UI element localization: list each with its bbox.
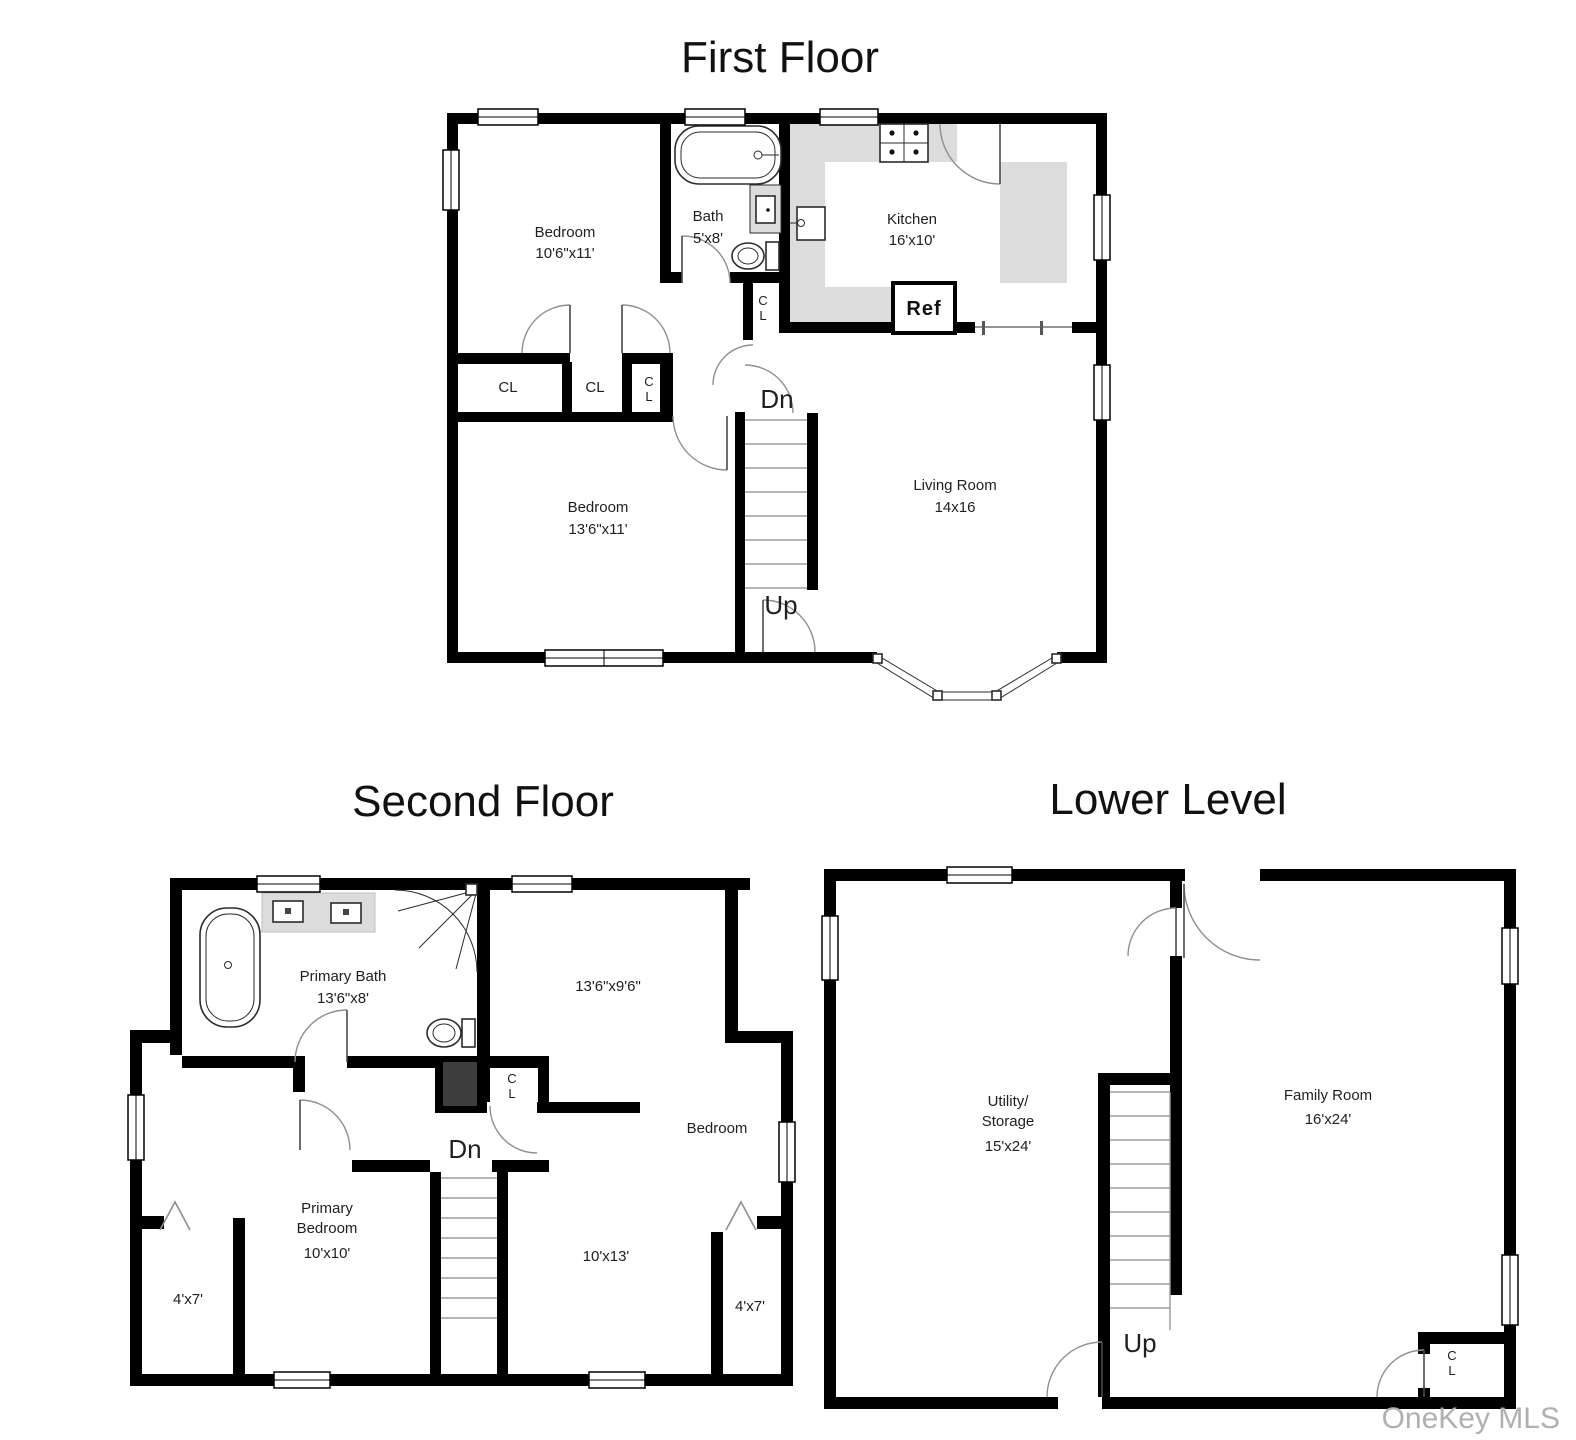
shower-icon (395, 884, 477, 972)
room-dims-bath: 5'x8' (693, 230, 723, 247)
toilet-icon (732, 242, 779, 270)
door-tick (982, 321, 985, 335)
closet-label: L (1448, 1363, 1455, 1378)
onekey-mls-watermark: OneKey MLS (1382, 1402, 1560, 1435)
refrigerator-icon: Ref (893, 283, 955, 333)
stove-icon (880, 124, 928, 162)
room-label-bedroom1: Bedroom (535, 224, 596, 241)
closet-label-cl1: CL (498, 379, 517, 396)
room-label-kitchen: Kitchen (887, 211, 937, 228)
bay-window (873, 654, 1061, 700)
room-dims-bedroom: 10'x13' (583, 1248, 630, 1265)
room-label-primary-bedroom-2: Bedroom (297, 1220, 358, 1237)
second-floor-doors (295, 1010, 537, 1153)
room-dims-kitchen: 16'x10' (889, 232, 936, 249)
closet-label: C (758, 293, 767, 308)
first-floor-stairs (745, 420, 807, 588)
primary-bath-vanity (262, 893, 375, 932)
bathtub-icon (675, 126, 781, 184)
lower-level-plan: Lower Level (822, 775, 1518, 1409)
closet-dims-right: 4'x7' (735, 1298, 765, 1315)
room-label-primary-bedroom-1: Primary (301, 1200, 353, 1217)
closet-label-cl3: C (644, 374, 653, 389)
closet-label: C (1447, 1348, 1456, 1363)
closet-label: L (508, 1086, 515, 1101)
attic-access-marker (160, 1202, 190, 1230)
room-dims-family: 16'x24' (1305, 1111, 1352, 1128)
closet-label: C (507, 1071, 516, 1086)
first-floor-plan: First Floor (443, 33, 1110, 700)
dark-closet (443, 1062, 477, 1106)
stairs-up-label: Up (764, 590, 797, 620)
lower-level-stairs (1110, 1092, 1170, 1330)
primary-bathtub-icon (200, 908, 260, 1027)
attic-access-marker (726, 1202, 756, 1230)
room-label-living: Living Room (913, 477, 996, 494)
second-floor-plan: Second Floor (128, 777, 795, 1388)
second-floor-title: Second Floor (352, 777, 614, 826)
floorplan-page: First Floor (0, 0, 1576, 1440)
room-dims-bedroom2: 13'6"x11' (568, 521, 627, 538)
room-dims-primary-bath: 13'6"x8' (317, 990, 369, 1007)
closet-dims-left: 4'x7' (173, 1291, 203, 1308)
room-label-bedroom: Bedroom (687, 1120, 748, 1137)
stairs-dn-label: Dn (448, 1134, 481, 1164)
closet-label-cl3: L (645, 389, 652, 404)
closet-label: L (759, 308, 766, 323)
room-dims-utility: 15'x24' (985, 1138, 1032, 1155)
toilet-icon (427, 1019, 475, 1047)
stairs-dn-label: Dn (760, 384, 793, 414)
closet-label-cl2: CL (585, 379, 604, 396)
floorplan-drawing: First Floor (0, 0, 1576, 1440)
kitchen-closet: C L (758, 293, 767, 323)
room-label-utility-2: Storage (982, 1113, 1035, 1130)
door-tick (1040, 321, 1043, 335)
room-dims-top-right: 13'6"x9'6" (575, 978, 641, 995)
second-floor-stairs (441, 1178, 497, 1318)
room-label-bath: Bath (693, 208, 724, 225)
first-floor-title: First Floor (681, 33, 879, 82)
stairs-up-label: Up (1123, 1328, 1156, 1358)
room-label-utility-1: Utility/ (988, 1093, 1030, 1110)
room-label-bedroom2: Bedroom (568, 499, 629, 516)
room-dims-bedroom1: 10'6"x11' (535, 245, 594, 262)
ref-label: Ref (906, 298, 941, 320)
room-label-primary-bath: Primary Bath (300, 968, 387, 985)
lower-level-title: Lower Level (1049, 775, 1286, 824)
bath-vanity-icon (750, 185, 781, 233)
room-dims-living: 14x16 (935, 499, 976, 516)
room-dims-primary-bedroom: 10'x10' (304, 1245, 351, 1262)
room-label-family: Family Room (1284, 1087, 1372, 1104)
